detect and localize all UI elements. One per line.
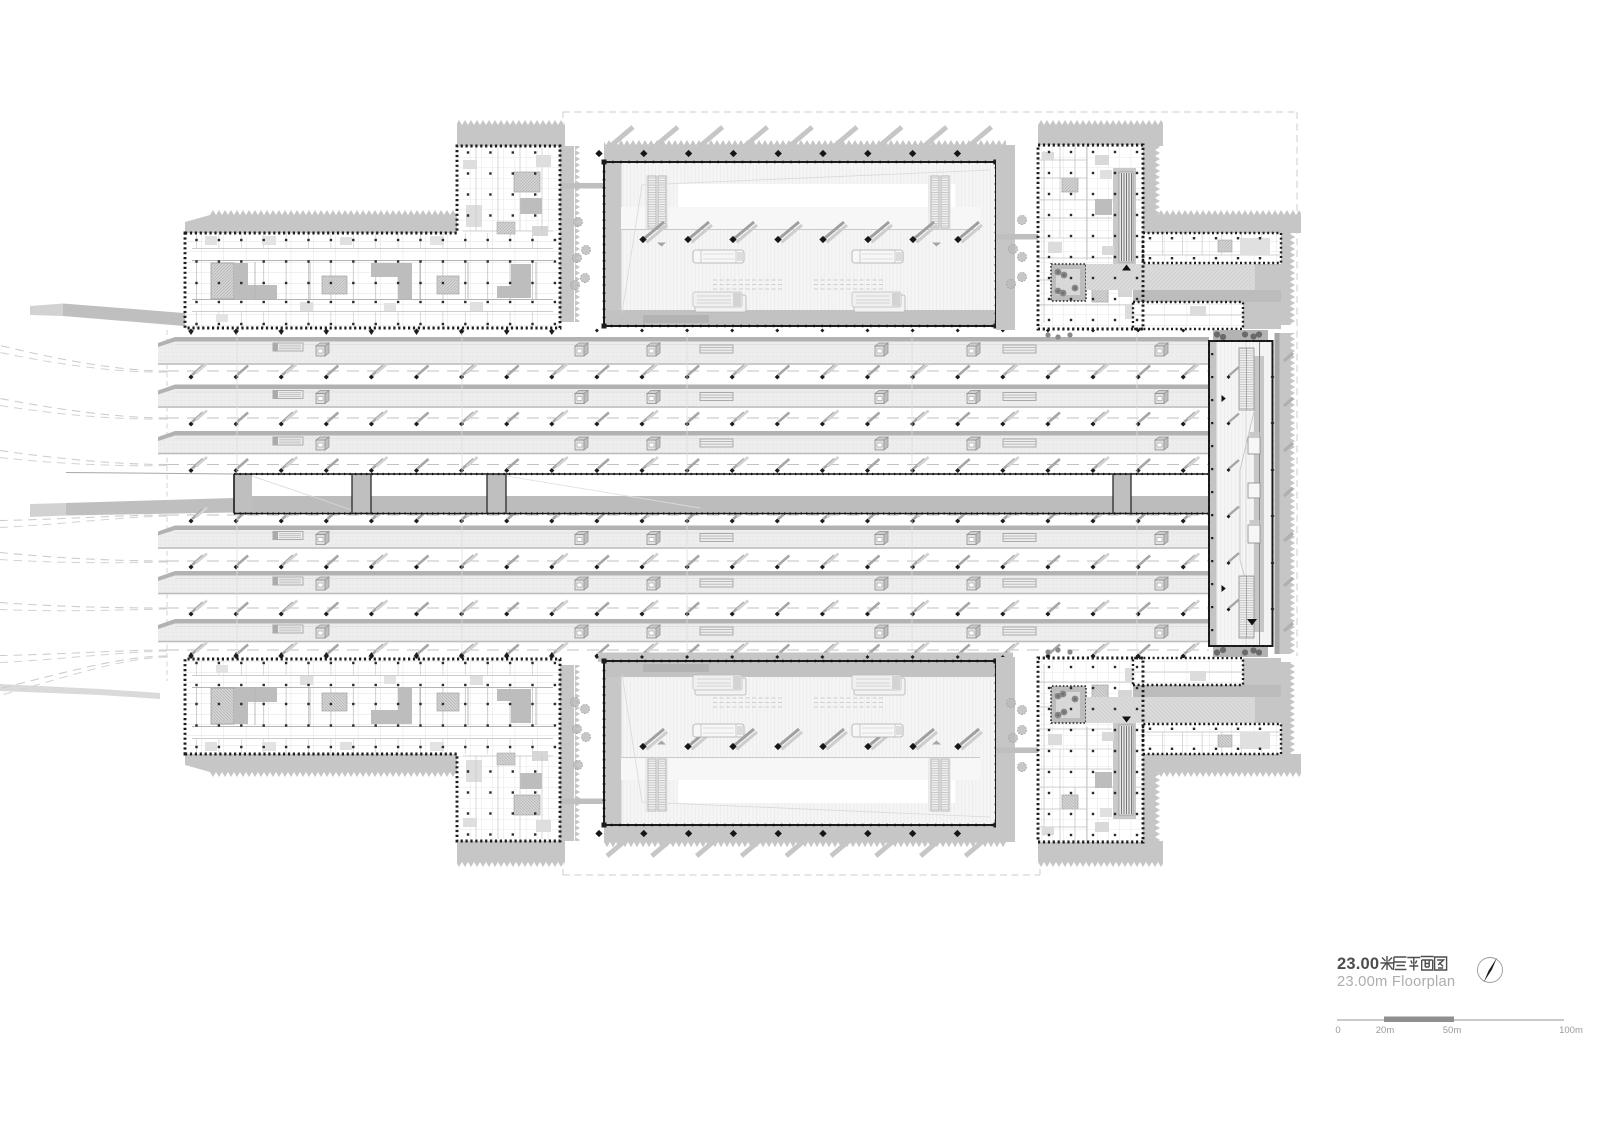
svg-text:20m: 20m (1376, 1025, 1395, 1036)
svg-text:0: 0 (1335, 1025, 1340, 1036)
svg-text:23.00: 23.00 (1337, 955, 1379, 973)
svg-text:100m: 100m (1559, 1025, 1583, 1036)
svg-text:23.00m Floorplan: 23.00m Floorplan (1337, 974, 1455, 990)
svg-text:50m: 50m (1443, 1025, 1462, 1036)
